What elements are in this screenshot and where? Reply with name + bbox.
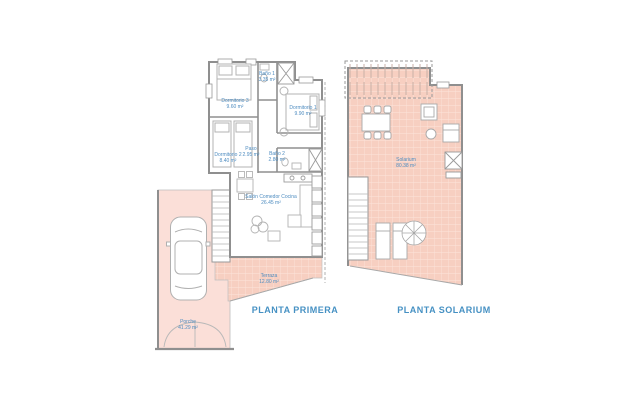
room-label-terraza: Terraza 12.80 m² — [259, 273, 279, 286]
room-area: 2.80 m² — [269, 157, 286, 163]
room-area: 3.35 m² — [259, 77, 276, 83]
spiral-staircase-icon — [402, 221, 426, 245]
car-icon — [167, 217, 211, 300]
window-icon — [437, 82, 449, 88]
room-area: 9.60 m² — [221, 104, 248, 110]
floor-plan-canvas: Dormitorio 3 9.60 m² Baño 1 3.35 m² Dorm… — [0, 0, 620, 415]
staircase-left-icon — [212, 190, 230, 262]
room-label-dormitorio-3: Dormitorio 3 9.60 m² — [221, 98, 248, 111]
outdoor-dining-set-icon — [362, 106, 391, 139]
room-label-bano-1: Baño 1 3.35 m² — [259, 71, 276, 84]
room-area: 2.95 m² — [243, 152, 260, 158]
room-label-solarium: Solarium 80.38 m² — [396, 157, 416, 170]
room-label-dormitorio-1: Dormitorio 1 9.90 m² — [289, 105, 316, 118]
room-area: 41.29 m² — [178, 325, 198, 331]
room-area: 9.90 m² — [289, 111, 316, 117]
stair-skylight-icon — [445, 152, 462, 178]
room-area: 80.38 m² — [396, 163, 416, 169]
floor-plan-drawing — [0, 0, 620, 415]
room-area: 26.45 m² — [245, 200, 297, 206]
staircase-right-icon — [348, 177, 368, 260]
room-label-paso: Paso 2.95 m² — [243, 146, 260, 159]
room-label-bano-2: Baño 2 2.80 m² — [269, 151, 286, 164]
room-label-dormitorio-2: Dormitorio 2 8.40 m² — [214, 152, 241, 165]
room-area: 8.40 m² — [214, 158, 241, 164]
room-area: 12.80 m² — [259, 279, 279, 285]
double-bed-icon — [217, 64, 251, 100]
plan-title-planta-solarium: PLANTA SOLARIUM — [397, 305, 491, 315]
plan-title-planta-primera: PLANTA PRIMERA — [252, 305, 339, 315]
room-label-porche: Porche 41.29 m² — [178, 319, 198, 332]
room-label-salon-comedor-cocina: Salón Comedor Cocina 26.45 m² — [245, 194, 297, 207]
